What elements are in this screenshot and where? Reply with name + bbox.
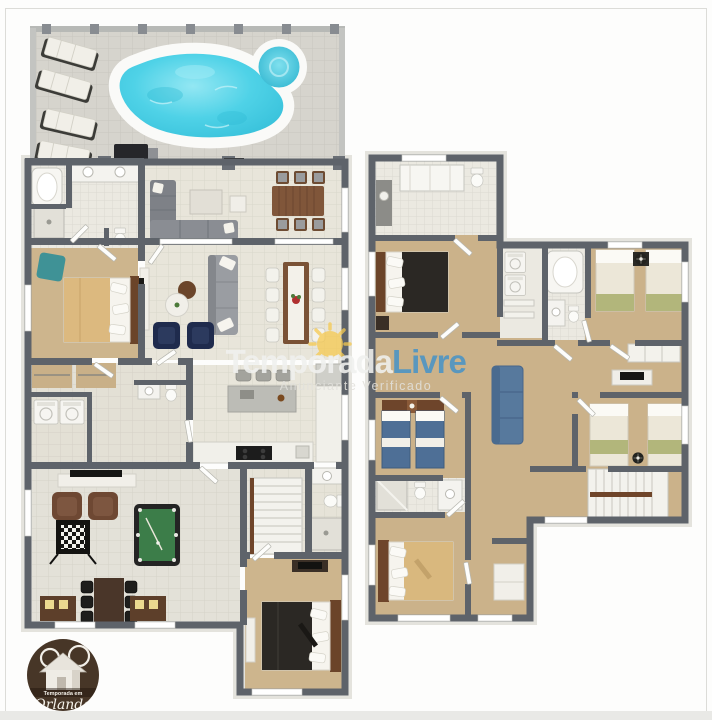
bottom-border-band: [0, 711, 712, 720]
floor-plan-canvas: Temporada Livre Anunciante Verificado Te…: [0, 0, 712, 720]
image-frame: [5, 8, 707, 713]
